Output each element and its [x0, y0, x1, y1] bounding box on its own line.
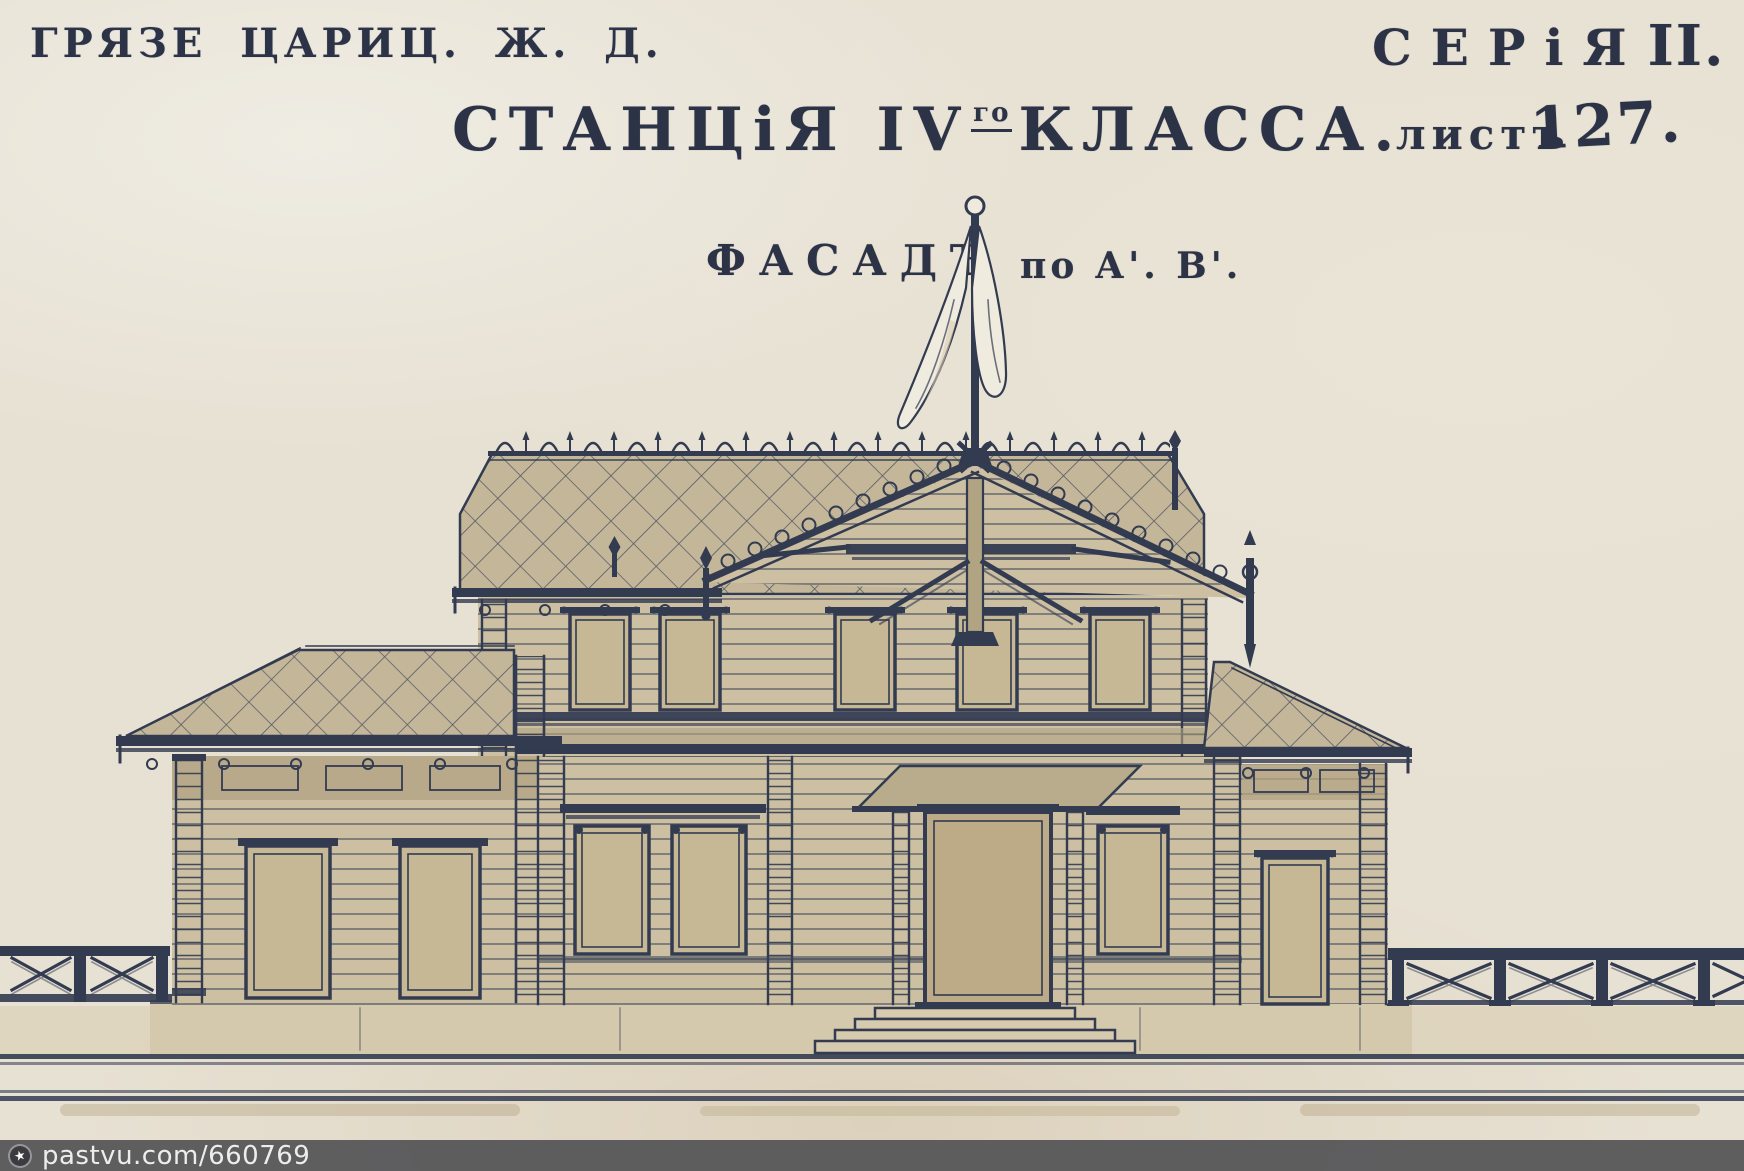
gable-truss: [760, 478, 1168, 646]
main-roof: [452, 428, 1204, 615]
left-wing: [116, 646, 562, 1005]
roof-finial-left: [609, 536, 621, 577]
gable-apex-cross: [960, 444, 990, 470]
entrance-door: [925, 812, 1051, 1004]
steps: [815, 1008, 1135, 1053]
central-gable: [700, 444, 1257, 668]
gable-finial-left: [700, 546, 712, 621]
ground: [0, 1000, 1744, 1116]
star-circle-icon: ★: [5, 1141, 34, 1170]
right-annex: [1204, 662, 1412, 1004]
title-superscript: го: [971, 100, 1012, 132]
gable-finial-right: [1243, 530, 1257, 668]
platform-fence-left: [0, 946, 172, 1002]
second-floor: [478, 596, 1208, 760]
sheet-number: 127.: [1529, 92, 1685, 158]
door-canopy: [858, 766, 1140, 808]
first-floor: [538, 757, 1242, 1008]
bargeboard-scrolls: [722, 460, 1227, 579]
annex-door: [1254, 850, 1336, 1004]
series-numeral: II.: [1648, 13, 1726, 79]
scanned-sheet: ГРЯЗЕ ЦАРИЦ. Ж. Д. СЕРіЯII. СТАНЦіЯ IVго…: [0, 0, 1744, 1171]
title-class: КЛАССА.: [1018, 95, 1403, 165]
pilasters: [538, 757, 1240, 1004]
caption-facade: ФАСАДЪ: [706, 240, 1003, 282]
roof-finial-right: [1169, 430, 1181, 510]
caption-axis: по А'. В'.: [1020, 248, 1242, 284]
roof-cresting: [494, 428, 1170, 454]
station-facade-drawing: [0, 0, 1744, 1171]
railway-name: ГРЯЗЕ ЦАРИЦ. Ж. Д.: [30, 24, 664, 64]
storey-cornice: [516, 712, 1242, 759]
watermark-text[interactable]: pastvu.com/660769: [42, 1141, 310, 1171]
series-word: СЕРіЯ: [1372, 18, 1646, 77]
entrance: [852, 766, 1140, 1008]
sheet-title: СТАНЦіЯ IVгоКЛАССА.: [452, 100, 1403, 160]
platform-fence-right: [1387, 948, 1744, 1006]
watermark-bar: ★ pastvu.com/660769: [0, 1140, 1744, 1171]
second-floor-windows: [560, 607, 1160, 711]
series-label: СЕРіЯII.: [1372, 18, 1725, 74]
title-station: СТАНЦіЯ IV: [452, 95, 969, 165]
